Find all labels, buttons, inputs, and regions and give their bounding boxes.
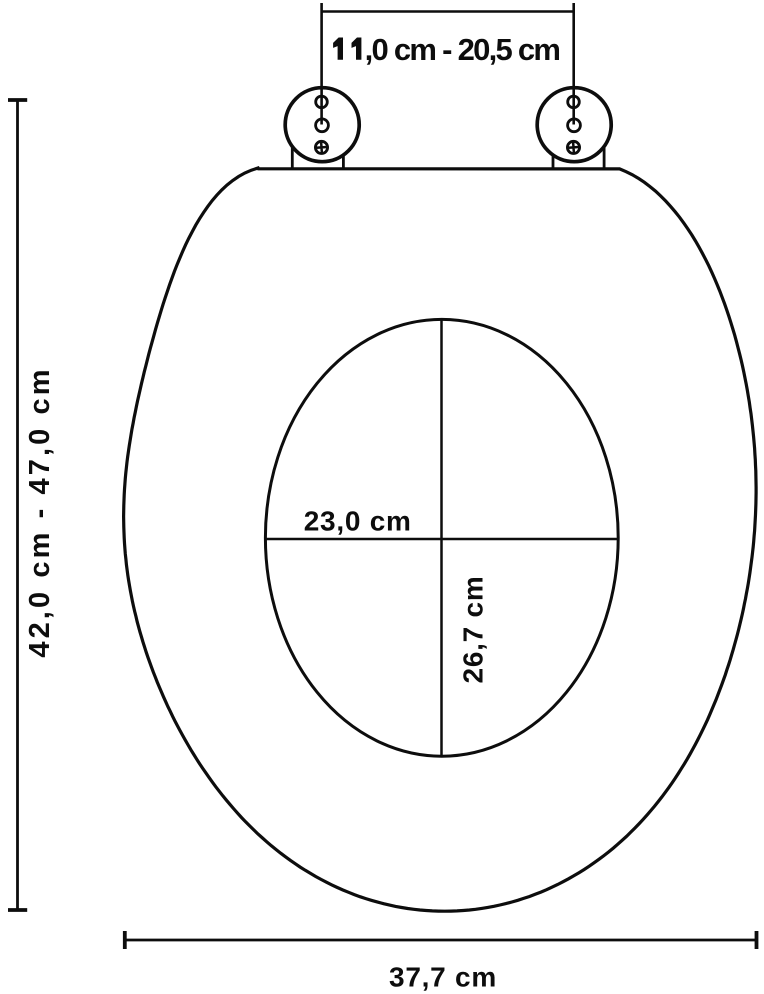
svg-text:26,7 cm: 26,7 cm: [458, 576, 489, 684]
svg-text:42,0 cm - 47,0 cm: 42,0 cm - 47,0 cm: [24, 366, 56, 657]
svg-text:,0 cm - 20,5 cm: ,0 cm - 20,5 cm: [365, 32, 560, 67]
svg-text:23,0 cm: 23,0 cm: [304, 506, 412, 537]
svg-text:37,7 cm: 37,7 cm: [389, 961, 497, 992]
